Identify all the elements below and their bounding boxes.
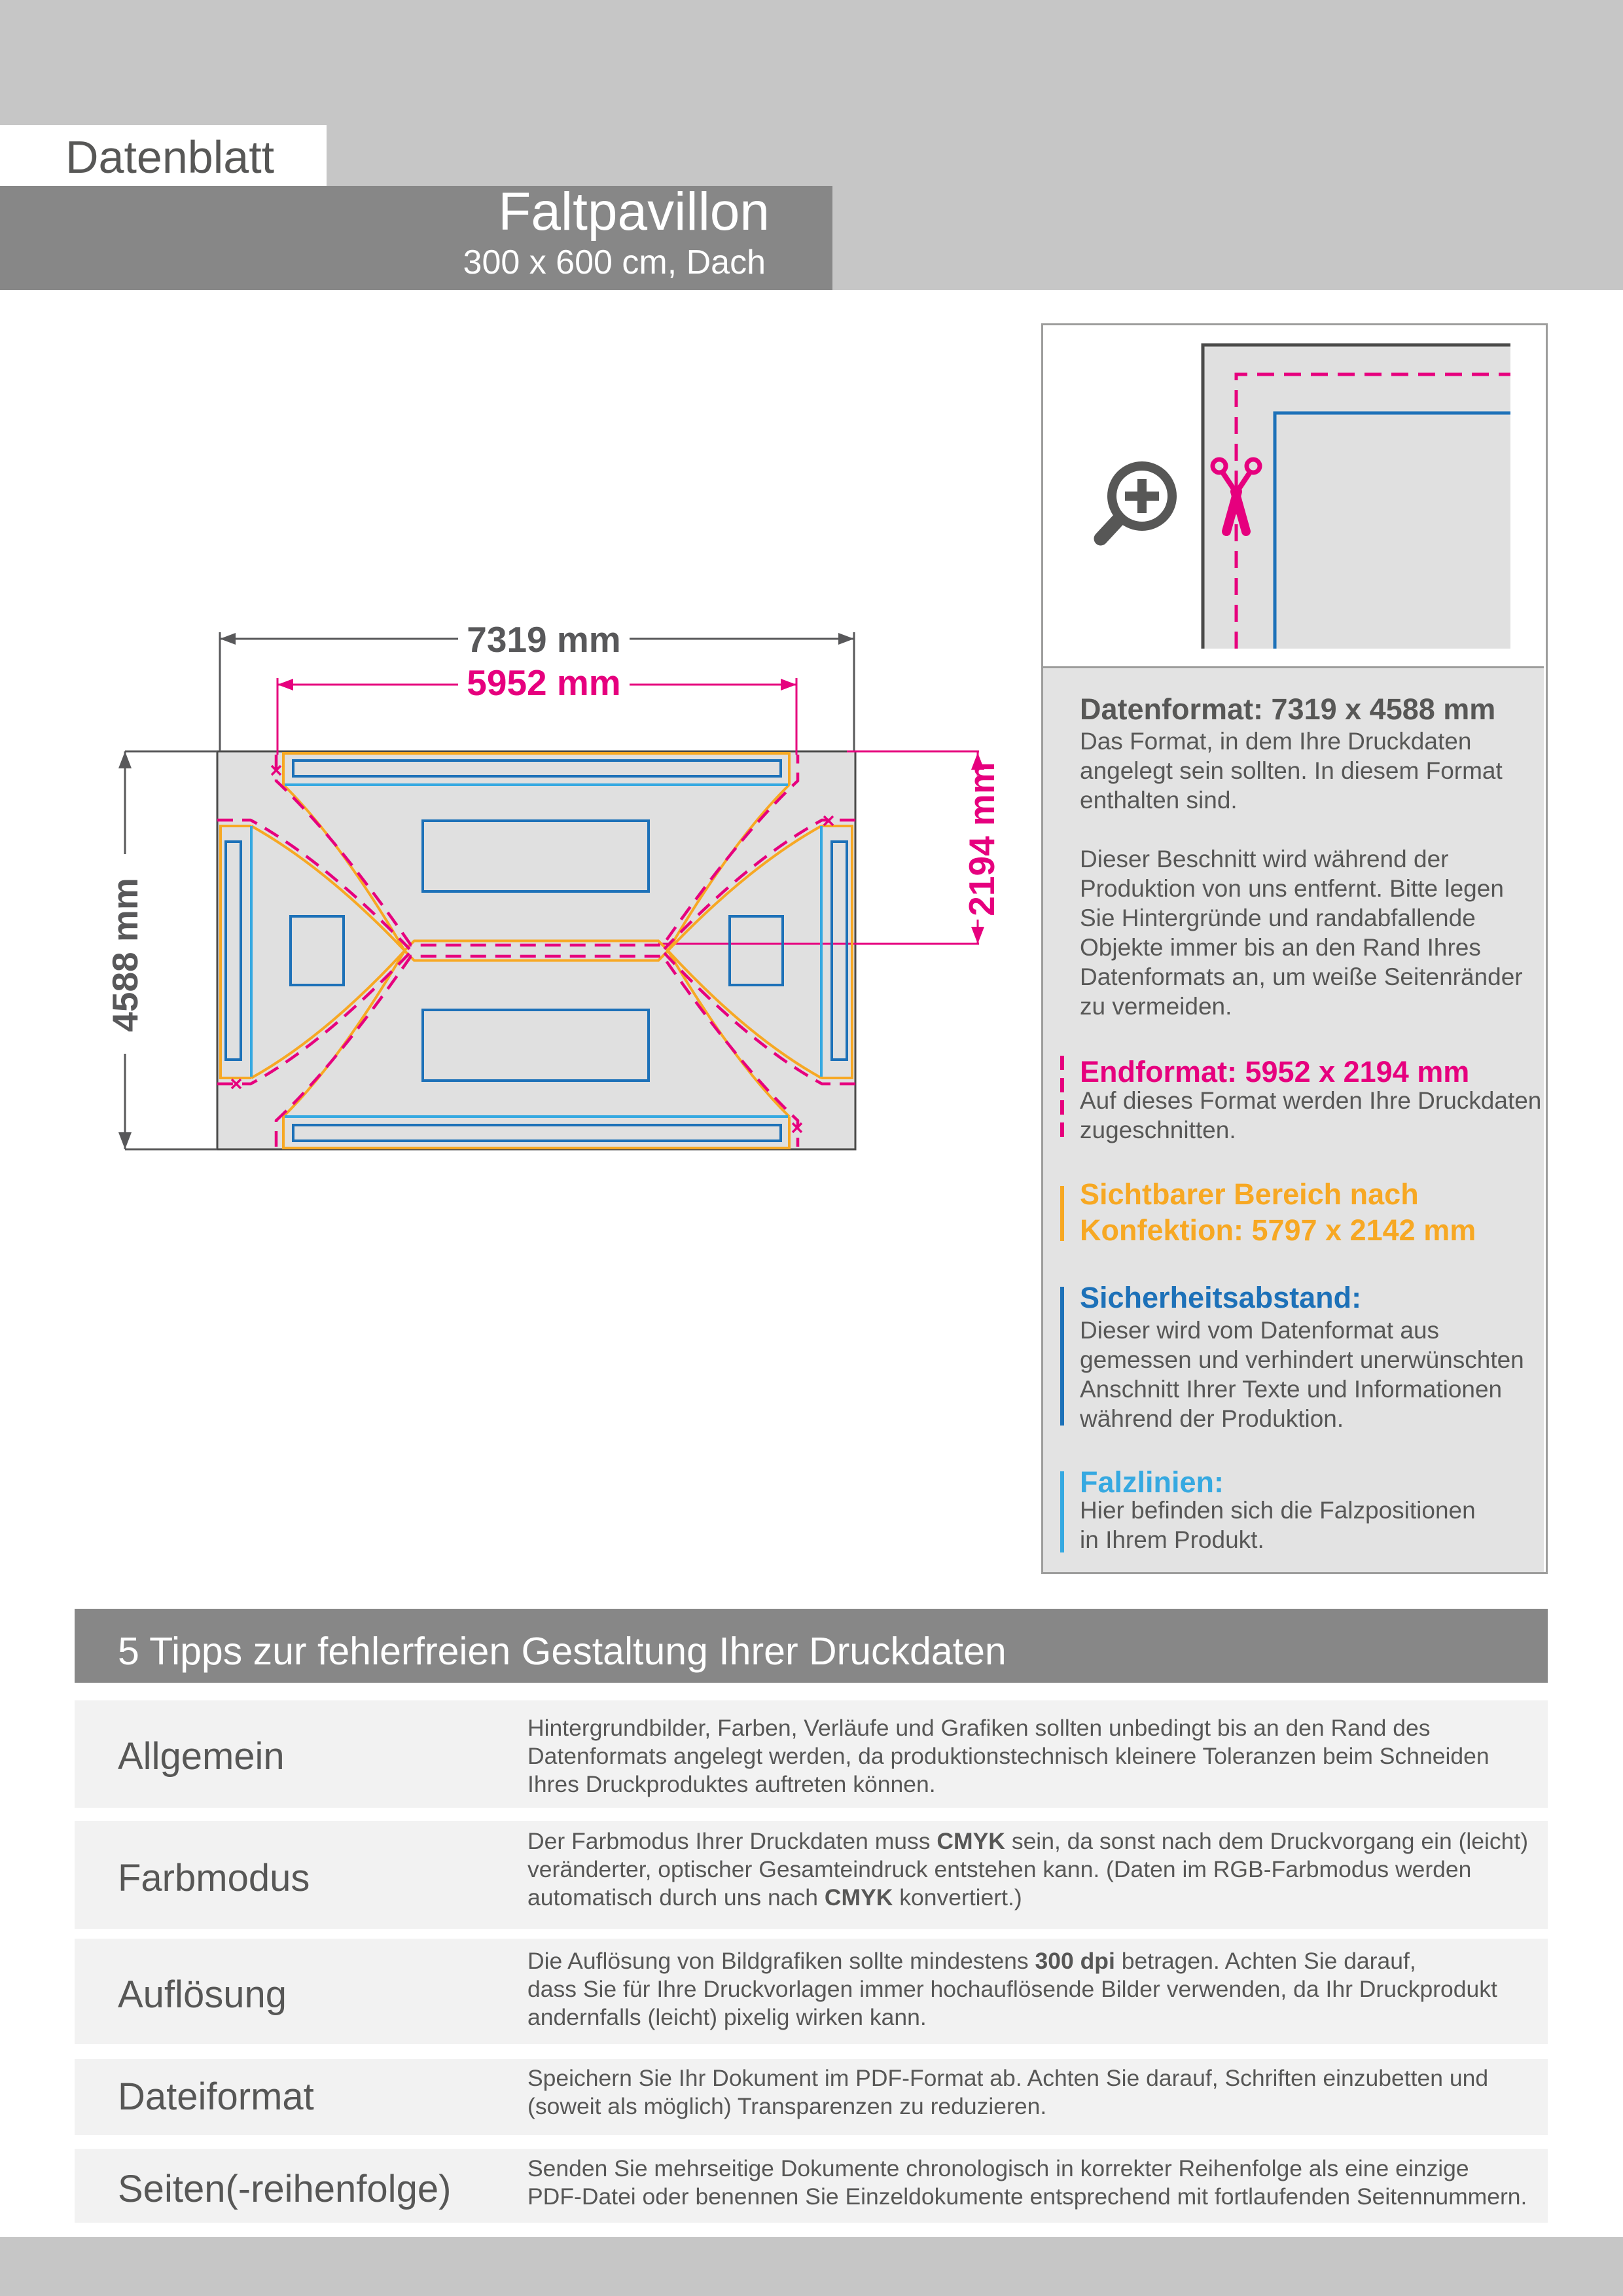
- svg-text:5952 mm: 5952 mm: [467, 662, 620, 703]
- svg-text:4588 mm: 4588 mm: [105, 878, 145, 1031]
- svg-text:2194 mm: 2194 mm: [961, 762, 1002, 916]
- svg-text:7319 mm: 7319 mm: [467, 619, 620, 660]
